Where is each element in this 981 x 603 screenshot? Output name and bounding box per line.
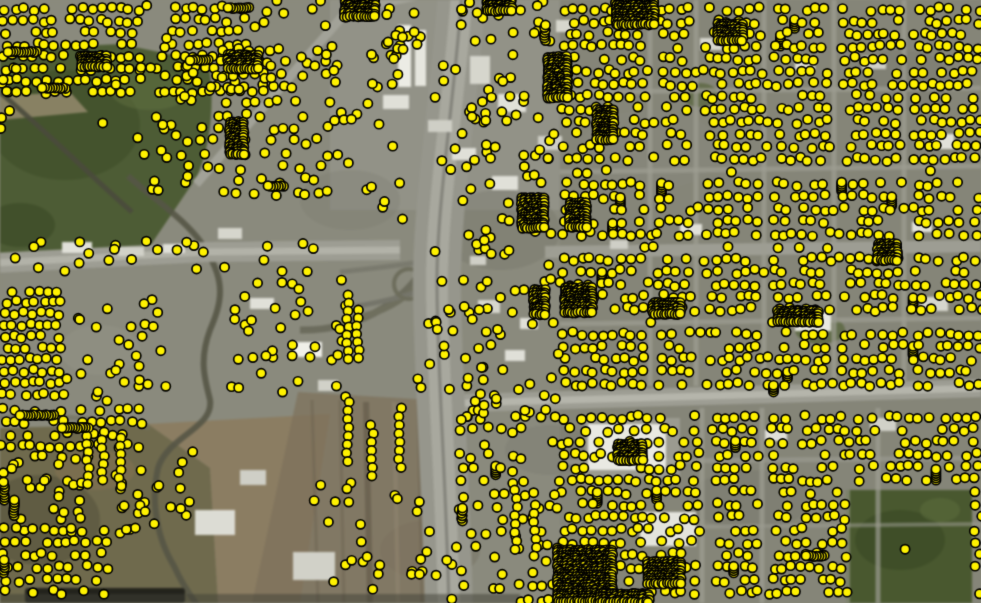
marker-overlay-layer[interactable] — [0, 0, 981, 603]
map-viewport[interactable] — [0, 0, 981, 603]
